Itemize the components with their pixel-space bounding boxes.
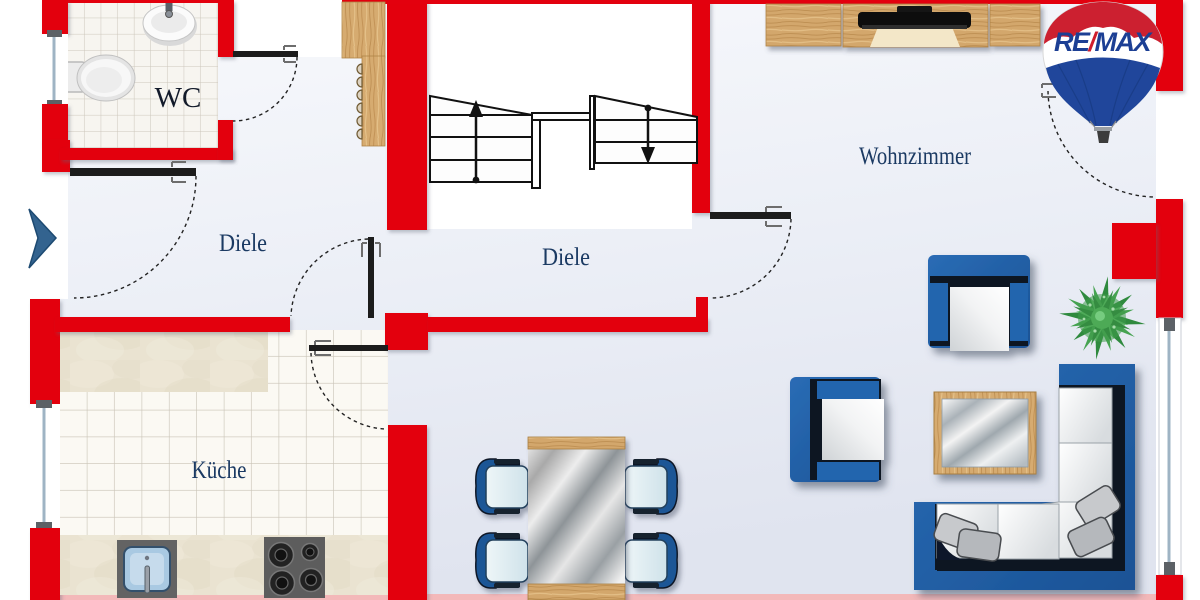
svg-text:Wohnzimmer: Wohnzimmer: [859, 143, 972, 170]
svg-text:Küche: Küche: [192, 457, 247, 484]
svg-text:RE/MAX: RE/MAX: [1054, 27, 1154, 57]
svg-text:WC: WC: [155, 82, 202, 114]
svg-text:Diele: Diele: [219, 230, 267, 257]
svg-text:Diele: Diele: [542, 244, 590, 271]
